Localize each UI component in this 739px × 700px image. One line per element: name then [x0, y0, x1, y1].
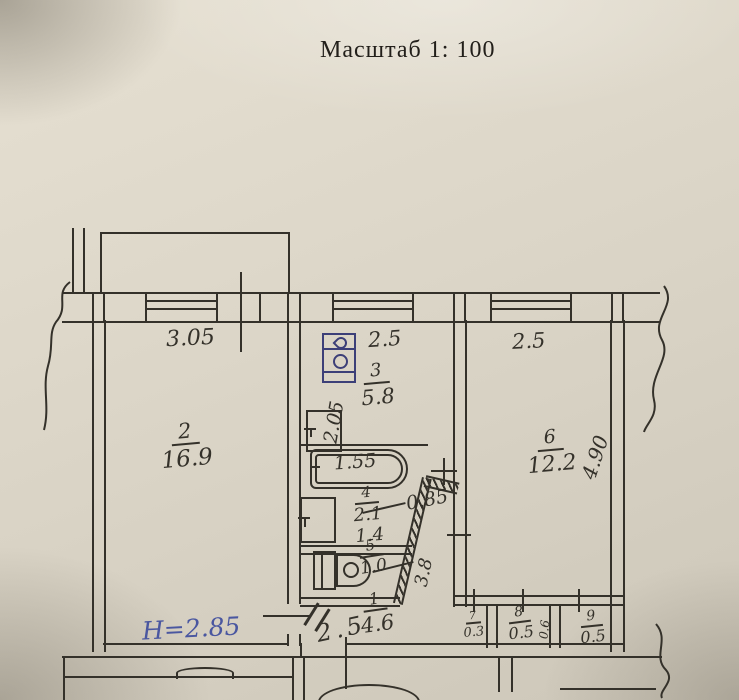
wall-line — [570, 292, 572, 323]
wall-line — [292, 658, 305, 700]
window-icon — [490, 300, 572, 310]
break-line-icon — [638, 284, 682, 434]
exterior-wall-left — [92, 320, 106, 652]
entry-door-leaf — [345, 637, 347, 689]
door-leaf — [263, 615, 311, 617]
wall-line — [63, 656, 65, 700]
balcony-door-jamb — [240, 272, 242, 352]
washbasin-icon — [300, 497, 336, 543]
wall-line — [498, 658, 513, 692]
wall-line — [622, 292, 624, 323]
threshold-arc — [176, 667, 234, 679]
wall-line — [490, 292, 492, 323]
scanned-floor-plan: Масштаб 1: 100 — [0, 0, 739, 700]
wall-line — [259, 292, 261, 323]
wall-line — [287, 292, 289, 323]
room-3-label: 3 5.8 — [350, 360, 404, 410]
room-5-label: 5 1.0 — [347, 534, 397, 580]
dimension-tick — [447, 534, 471, 536]
dim-room6-width: 2.5 — [511, 330, 545, 353]
break-line-icon — [640, 622, 684, 700]
ceiling-height-note: Н=2.85 — [141, 613, 241, 643]
wall-line — [145, 292, 147, 323]
wall-line — [611, 292, 613, 323]
dim-kitchen-depth: 2.05 — [321, 382, 350, 444]
door-swing-arc — [318, 684, 420, 700]
interior-wall — [287, 320, 301, 604]
wall-line — [412, 292, 414, 323]
dim-hall-opening: 0.85 — [405, 487, 450, 514]
interior-wall — [453, 320, 467, 607]
wall-line — [103, 292, 105, 323]
room-7-label: 7 0.3 — [460, 605, 487, 640]
wall-line — [332, 292, 334, 323]
dim-hall-wall: 3.8 — [413, 542, 440, 589]
wall-line — [92, 292, 94, 323]
dim-kitchen-width: 2.5 — [367, 328, 402, 351]
balcony-outline — [100, 232, 290, 294]
room-2-label: 2 16.9 — [148, 417, 224, 474]
window-icon — [332, 300, 414, 310]
break-line-icon — [40, 278, 76, 438]
door-jamb — [300, 643, 302, 658]
exterior-wall-bottom — [103, 643, 289, 645]
dim-bathtub: 1.55 — [333, 452, 377, 474]
wall-line — [464, 292, 466, 323]
dimension-tick — [443, 458, 445, 485]
wall-line — [299, 292, 301, 323]
wall-line — [453, 292, 455, 323]
wall-line — [216, 292, 218, 323]
window-icon — [145, 300, 218, 310]
closet-wall — [486, 604, 498, 648]
dim-closet8-depth: 0.6 — [537, 608, 552, 639]
page-title: Масштаб 1: 100 — [320, 38, 495, 62]
exterior-wall-bottom — [62, 656, 662, 658]
room-9-label: 9 0.5 — [568, 605, 616, 648]
dim-room2-width: 3.05 — [165, 327, 215, 352]
interior-wall — [287, 634, 301, 646]
room-6-label: 6 12.2 — [516, 425, 586, 479]
